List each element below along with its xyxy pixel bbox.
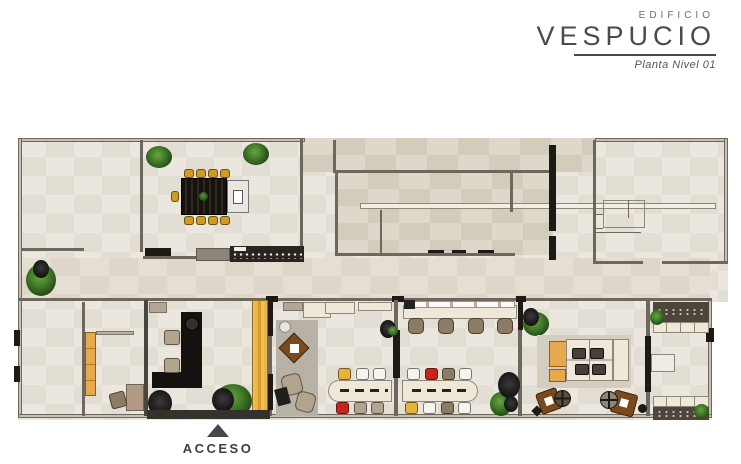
wall — [593, 140, 596, 264]
chair — [164, 358, 180, 373]
wood-slat-wall — [252, 300, 268, 412]
plant-icon — [388, 326, 398, 336]
chair — [575, 364, 589, 375]
wall — [662, 261, 728, 264]
plan-level-subtitle: Planta Nivel 01 — [536, 59, 716, 71]
cabinet — [283, 302, 303, 311]
plant-icon — [33, 260, 49, 278]
wall — [595, 138, 728, 142]
stall-partition — [593, 228, 603, 229]
service-room-floor — [337, 172, 553, 255]
side-table — [600, 391, 618, 409]
wall — [18, 138, 305, 142]
building-name: VESPUCIO — [536, 21, 716, 52]
counter-ledge — [360, 203, 716, 209]
chair — [371, 402, 384, 414]
plant-icon — [146, 146, 172, 168]
building-label: EDIFICIO — [536, 10, 716, 21]
plant-icon — [243, 143, 269, 165]
side-table — [554, 390, 571, 407]
desk-cabinet — [613, 339, 629, 381]
chair — [164, 330, 180, 345]
wall — [596, 261, 643, 264]
wall — [510, 172, 513, 212]
entrance-threshold — [147, 410, 270, 419]
chair — [408, 318, 424, 334]
wall — [335, 253, 515, 256]
chair — [407, 368, 420, 380]
door-threshold — [478, 250, 494, 253]
shelf-cabinet — [85, 332, 96, 396]
chair — [497, 318, 513, 334]
privacy-panels — [405, 301, 515, 308]
wall — [335, 172, 338, 256]
chair — [171, 191, 179, 202]
shelf — [96, 331, 134, 335]
wall-pier — [549, 236, 556, 260]
page-margin — [712, 302, 741, 422]
chair — [468, 318, 484, 334]
stall-partition — [603, 200, 645, 228]
stall-partition — [628, 200, 629, 218]
chair — [356, 368, 369, 380]
chair — [220, 169, 230, 178]
chair — [184, 216, 194, 225]
chair — [441, 402, 454, 414]
wall — [140, 140, 143, 252]
magazine — [290, 344, 299, 353]
chair — [423, 402, 436, 414]
chair — [438, 318, 454, 334]
plant-icon — [212, 388, 234, 412]
door-threshold — [428, 250, 444, 253]
plant-icon — [638, 404, 647, 413]
chair — [590, 348, 604, 359]
stall-partition — [593, 214, 603, 215]
access-label: ACCESO — [168, 441, 268, 456]
cabinet — [358, 302, 392, 311]
desk-cluster — [566, 339, 613, 381]
chair — [425, 368, 438, 380]
kitchen-cabinets — [653, 322, 709, 333]
chair — [442, 368, 455, 380]
wall — [144, 300, 148, 416]
chair — [572, 348, 586, 359]
chair — [196, 169, 206, 178]
chair — [459, 368, 472, 380]
floor-plan-sheet: EDIFICIO VESPUCIO Planta Nivel 01 — [0, 0, 741, 464]
table-divider — [412, 389, 470, 392]
reception-desk — [152, 372, 202, 388]
wall — [18, 414, 712, 418]
floor-lamp — [279, 321, 291, 333]
chair — [373, 368, 386, 380]
stall-partition — [596, 232, 641, 233]
chair — [354, 402, 367, 414]
chair — [405, 402, 418, 414]
desk-cabinet — [549, 341, 567, 367]
wall — [22, 248, 84, 251]
glassware — [232, 252, 302, 259]
tray — [234, 247, 246, 251]
chair — [338, 368, 351, 380]
wall-pier — [549, 145, 556, 231]
chair — [220, 216, 230, 225]
stool — [185, 317, 199, 331]
plant-icon — [523, 308, 539, 326]
chair — [196, 216, 206, 225]
desk-cabinet — [549, 369, 566, 382]
chair — [592, 364, 606, 375]
wall-pier — [393, 330, 400, 378]
wall-pier — [145, 248, 171, 256]
title-block: EDIFICIO VESPUCIO Planta Nivel 01 — [536, 10, 716, 71]
access-arrow-icon — [207, 424, 229, 437]
wall — [333, 170, 555, 173]
plant-icon — [694, 404, 709, 419]
plant-icon — [504, 396, 518, 412]
printer — [404, 300, 415, 309]
title-underline — [574, 54, 716, 56]
plant-icon — [199, 192, 208, 201]
plant-icon — [498, 372, 520, 398]
wall-pier — [14, 330, 20, 346]
counter — [196, 248, 230, 261]
table-divider — [340, 389, 388, 392]
desk — [126, 384, 144, 411]
kitchen-island — [651, 354, 675, 372]
chair — [336, 402, 349, 414]
wall — [724, 138, 728, 264]
door-threshold — [452, 250, 466, 253]
chair — [458, 402, 471, 414]
wall — [333, 140, 336, 172]
cabinet — [325, 302, 355, 314]
wall — [300, 138, 303, 258]
wall — [18, 298, 712, 301]
chair — [208, 169, 218, 178]
access-marker: ACCESO — [168, 424, 268, 456]
wall — [380, 210, 382, 255]
plant-icon — [650, 310, 664, 325]
chair — [208, 216, 218, 225]
chair — [184, 169, 194, 178]
cabinet — [149, 302, 167, 313]
corridor-floor — [22, 258, 710, 300]
wall-pier — [14, 366, 20, 382]
monitor — [233, 190, 243, 204]
